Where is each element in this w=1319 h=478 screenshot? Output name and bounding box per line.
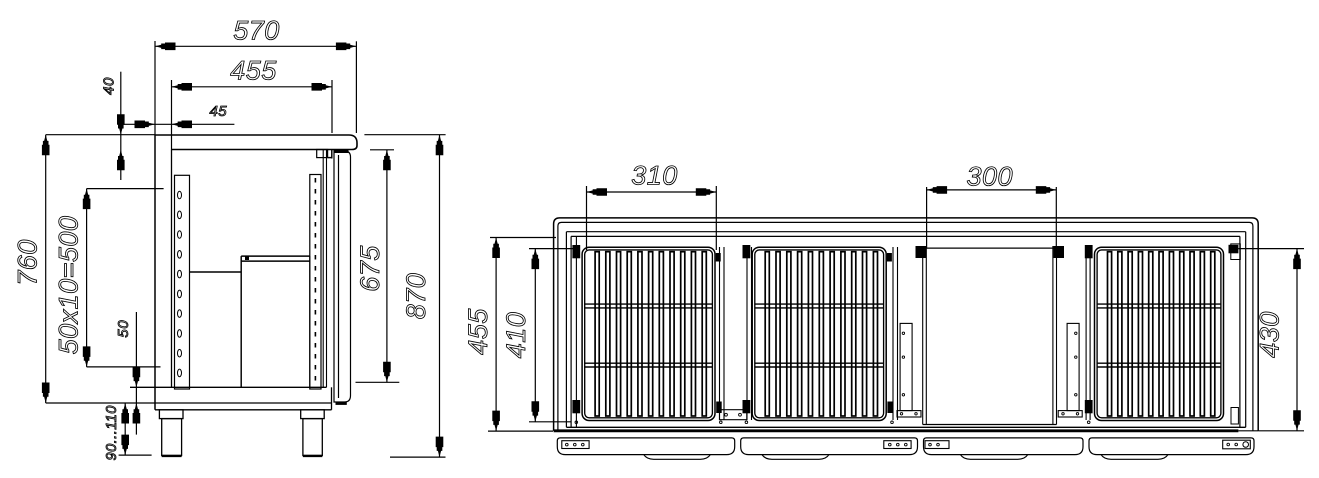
svg-text:570: 570 xyxy=(233,15,280,45)
svg-text:50: 50 xyxy=(115,320,132,338)
svg-text:40: 40 xyxy=(101,77,118,95)
svg-text:310: 310 xyxy=(631,161,678,191)
svg-text:455: 455 xyxy=(463,308,493,355)
svg-text:760: 760 xyxy=(12,239,42,286)
svg-text:870: 870 xyxy=(401,273,431,320)
svg-text:300: 300 xyxy=(967,161,1014,191)
svg-text:675: 675 xyxy=(355,245,385,292)
svg-text:90...110: 90...110 xyxy=(104,405,120,460)
svg-text:410: 410 xyxy=(501,312,531,359)
svg-text:50x10=500: 50x10=500 xyxy=(54,216,84,355)
svg-text:430: 430 xyxy=(1254,311,1284,358)
svg-text:45: 45 xyxy=(209,103,227,120)
svg-text:455: 455 xyxy=(230,55,277,85)
